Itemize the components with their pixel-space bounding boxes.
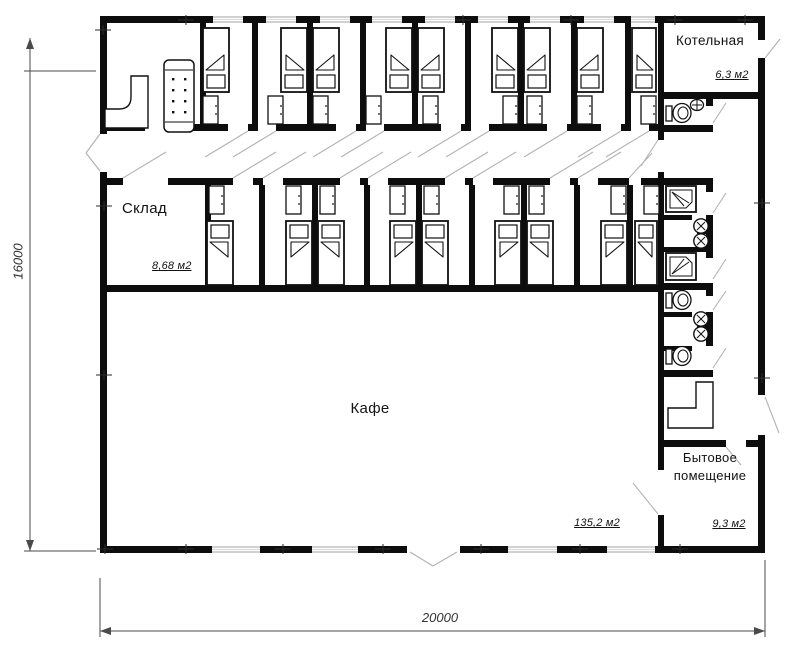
cabinet-handle [539,113,541,115]
bed-pillow [322,225,340,238]
bed [390,221,416,285]
cabinet [644,186,659,214]
bed-pillow [639,225,653,238]
bed [632,28,656,92]
wall-segment [259,185,265,292]
bed [495,221,521,285]
cabinet-handle [402,195,404,197]
reception-desk [105,76,148,128]
cabinet-handle [539,105,541,107]
sofa-tuft [172,100,174,102]
cabinet-handle [541,203,543,205]
bed-pillow [636,75,652,88]
cabinet-handle [332,195,334,197]
wall-segment [360,23,366,131]
wall-segment [571,23,577,131]
cabinet [611,186,626,214]
door-swing [123,152,166,178]
dimension-arrow [754,627,765,635]
cabinet-handle [435,113,437,115]
wall-segment [664,125,713,132]
exit-door-leaf [86,153,100,171]
area-label-kafe: 135,2 м2 [557,517,637,529]
door-swing [713,291,726,310]
toilet-bowl-inner [678,294,688,306]
cabinet [503,96,518,124]
bed [492,28,518,92]
wall-segment [168,178,233,185]
cabinet-handle [436,195,438,197]
bed-pillow [528,75,546,88]
wall-segment [664,215,692,220]
cabinet-handle [221,195,223,197]
dimension-arrow [26,38,34,49]
bed [318,221,344,285]
room-label-kotelnaya: Котельная [664,33,756,48]
wall-segment [706,185,713,192]
area-label-bytovoe: 9,3 м2 [703,518,755,530]
wall-segment [253,178,263,185]
door-swing [713,348,726,368]
cabinet-handle [516,203,518,205]
door-swing [629,153,652,178]
cabinet-handle [656,195,658,197]
door-swing [340,152,383,178]
cabinet [203,96,218,124]
wall-segment [664,312,692,317]
wall-segment [664,283,713,290]
bed [203,28,229,92]
wall-segment [658,172,664,470]
door-swing [606,131,649,157]
bed-pillow [285,75,303,88]
entrance-opening [407,545,460,554]
bed-pillow [605,225,623,238]
cabinet [320,186,335,214]
cabinet-handle [280,113,282,115]
cabinet-handle [332,203,334,205]
wall-segment [627,185,633,292]
dimension-arrow [26,540,34,551]
wall-segment [360,178,368,185]
door-swing [341,131,384,157]
room-label-kafe: Кафе [335,400,405,417]
toilet-bowl-inner [678,350,688,362]
bed [281,28,307,92]
cabinet-handle [221,203,223,205]
door-swing [578,152,621,178]
cabinet [527,96,542,124]
cabinet-handle [541,195,543,197]
room-label-bytovoe-line2: помещение [662,468,758,483]
entrance-door-leaf [433,552,457,566]
door-swing [233,131,276,157]
sofa-tuft [172,111,174,113]
bed [386,28,412,92]
door-swing [446,131,489,157]
cabinet-handle [589,105,591,107]
cabinet-handle [516,195,518,197]
wall-segment [664,370,713,377]
cabinet-handle [515,113,517,115]
door-swing [473,152,516,178]
cabinet [423,96,438,124]
dimension-arrow [100,627,111,635]
cabinet-handle [215,105,217,107]
cabinet-handle [653,113,655,115]
cabinet [504,186,519,214]
cabinet-handle [435,105,437,107]
bed [635,221,657,285]
cabinet-handle [298,203,300,205]
cabinet [424,186,439,214]
cabinet-handle [656,203,658,205]
bed-pillow [290,225,308,238]
bed [422,221,448,285]
wall-segment [283,178,340,185]
cabinet-handle [215,113,217,115]
room-label-bytovoe-line1: Бытовое [664,450,756,465]
cabinet [268,96,283,124]
door-swing [713,259,726,279]
wall-segment [276,124,336,131]
bed-pillow [531,225,549,238]
wall-segment [469,185,475,292]
toilet-tank [666,349,672,364]
bed-pillow [390,75,408,88]
cabinet-handle [623,195,625,197]
door-swing [578,131,621,157]
bed-pillow [422,75,440,88]
door-swing [633,483,658,514]
room-label-sklad: Склад [122,200,167,217]
bed [601,221,627,285]
sofa [164,60,194,132]
wall-segment [746,440,758,447]
sofa-tuft [184,100,186,102]
cabinet-handle [280,105,282,107]
sofa-tuft [184,89,186,91]
cabinet [641,96,656,124]
wall-segment [364,185,370,292]
wall-segment [252,23,258,131]
cabinet-handle [515,105,517,107]
bed [577,28,603,92]
door-swing [550,152,593,178]
bed [207,221,233,285]
cabinet-handle [378,113,380,115]
cabinet-handle [653,105,655,107]
wall-segment [598,178,629,185]
wall-segment [706,252,713,258]
bed-pillow [207,75,225,88]
wall-segment [518,23,524,131]
door-swing [368,152,411,178]
wall-segment [493,178,550,185]
area-label-sklad: 8,68 м2 [152,260,192,272]
floor-plan-drawing [0,0,800,654]
wall-segment [100,172,107,553]
cabinet-handle [298,195,300,197]
cabinet-handle [325,113,327,115]
sofa-tuft [184,78,186,80]
exit-door-leaf [86,134,100,153]
toilet-tank [666,293,672,308]
cabinet [577,96,592,124]
wall-segment [100,178,123,185]
utility-counter [668,382,713,428]
bed-pillow [426,225,444,238]
cabinet [529,186,544,214]
cabinet-handle [402,203,404,205]
dimension-width-label: 20000 [395,610,485,625]
wall-segment [465,178,473,185]
cabinet [313,96,328,124]
toilet-tank [666,106,672,121]
door-swing [524,131,567,157]
floor-plan: Котельная 6,3 м2 Склад 8,68 м2 Кафе 135,… [0,0,800,654]
area-label-kotelnaya: 6,3 м2 [710,69,754,81]
bed [524,28,550,92]
wall-segment [570,178,578,185]
wall-segment [625,23,631,131]
door-swing [713,103,726,123]
bed-pillow [499,225,517,238]
cabinet-handle [436,203,438,205]
bed-pillow [317,75,335,88]
wall-segment [758,58,765,395]
bed [527,221,553,285]
bed [313,28,339,92]
bed-pillow [581,75,599,88]
wall-segment [664,440,726,447]
cabinet [390,186,405,214]
door-swing [765,397,779,433]
toilet-bowl-inner [678,107,688,119]
wall-segment [664,92,758,99]
cabinet-handle [378,105,380,107]
door-swing [641,140,658,166]
wall-segment [465,23,471,131]
wall-segment [706,290,713,296]
cabinet-handle [589,113,591,115]
door-swing [418,131,461,157]
cabinet-handle [325,105,327,107]
cabinet-handle [623,203,625,205]
wall-segment [706,99,713,106]
bed-pillow [211,225,229,238]
cabinet [366,96,381,124]
bed [286,221,312,285]
dimension-height-label: 16000 [11,222,26,302]
wall-segment [190,124,228,131]
bed-pillow [394,225,412,238]
wall-segment [388,178,445,185]
entrance-door-leaf [410,552,433,566]
wall-segment [758,16,765,40]
bed [418,28,444,92]
door-swing [205,131,248,157]
wall-segment [758,435,765,553]
wall-segment [664,178,713,185]
cabinet [209,186,224,214]
wall-segment [574,185,580,292]
door-swing [445,152,488,178]
sofa-tuft [184,111,186,113]
door-swing [313,131,356,157]
bed-pillow [496,75,514,88]
wall-segment [658,515,664,553]
door-swing [713,193,726,213]
door-swing [765,39,780,58]
sofa-tuft [172,89,174,91]
sofa-tuft [172,78,174,80]
wall-segment [664,247,713,252]
wall-segment [521,185,527,292]
cabinet [286,186,301,214]
